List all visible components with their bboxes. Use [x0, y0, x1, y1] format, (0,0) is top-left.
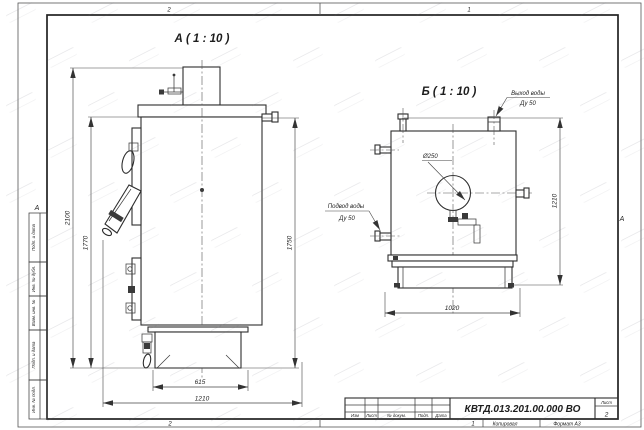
footer-format: Формат А3 [553, 422, 581, 428]
view-b-title: Б ( 1 : 10 ) [422, 86, 477, 98]
titleblock-col-podp: Подп. [418, 413, 429, 418]
view-b-side: Б ( 1 : 10 ) [325, 86, 563, 317]
outlet-label: Выход воды [511, 91, 545, 97]
dim-base-depth: 1020 [445, 305, 460, 312]
zone-marker-top-right: 1 [467, 8, 470, 14]
document-number: КВТД.013.201.00.000 ВО [465, 404, 581, 415]
stamp-field-label: Взам. инв. № [31, 299, 36, 326]
chimney [183, 67, 220, 105]
inlet-dn-label: Ду 50 [338, 216, 355, 222]
stamp-field-label: Инв. № подл. [31, 386, 36, 413]
zone-marker-bottom-right: 1 [471, 422, 474, 428]
titleblock-col-izm: Изм [351, 413, 359, 418]
drawing-sheet: 2 1 2 1 А А Подп. и дата Инв. № дубл. Вз… [0, 0, 644, 430]
sheet-label: Лист [600, 400, 612, 405]
zone-marker-bottom-left: 2 [167, 422, 172, 428]
right-side-stub [516, 188, 529, 198]
dim-total-height: 2100 [65, 210, 72, 226]
base-front [148, 327, 248, 368]
outlet-dn-label: Ду 50 [519, 101, 536, 107]
stamp-field-label: Подп. и дата [31, 223, 36, 251]
stamp-field-label: Подп. и дата [31, 341, 36, 369]
zone-marker-top-left: 2 [166, 8, 171, 14]
inlet-label: Подвод воды [328, 204, 365, 210]
view-a-front: А ( 1 : 10 ) [65, 33, 303, 407]
outlet-stub-front [262, 112, 278, 122]
ash-door-latch [142, 334, 152, 369]
margin-stamp-fields: Подп. и дата Инв. № дубл. Взам. инв. № П… [29, 213, 47, 419]
boiler-body-front [141, 117, 262, 325]
titleblock-col-list: Лист [365, 413, 377, 418]
stamp-field-label: Инв. № дубл. [31, 266, 36, 292]
dim-right-height: 1750 [287, 235, 294, 250]
dim-body-height: 1770 [83, 235, 90, 250]
hatch-diameter-label: Ø250 [422, 154, 438, 160]
sheet-number: 2 [604, 412, 609, 419]
titleblock-col-docnum: № докум. [387, 413, 406, 418]
fold-mark-left: А [34, 205, 40, 212]
dim-total-width: 1210 [195, 396, 210, 403]
title-block: Изм Лист № докум. Подп. Дата КВТД.013.20… [345, 398, 618, 428]
lower-door-hinges [126, 258, 141, 320]
center-mark [200, 188, 204, 192]
flue-damper-handle [159, 74, 183, 95]
footer-copied-by: Копировал [493, 422, 518, 428]
fold-mark-right: А [619, 216, 625, 223]
drawing-canvas: 2 1 2 1 А А Подп. и дата Инв. № дубл. Вз… [0, 0, 644, 430]
view-a-title: А ( 1 : 10 ) [174, 33, 230, 45]
base-side [388, 255, 517, 288]
dim-side-height: 1210 [552, 193, 559, 208]
titleblock-col-data: Дата [434, 413, 447, 418]
dim-base-width: 615 [195, 379, 206, 386]
